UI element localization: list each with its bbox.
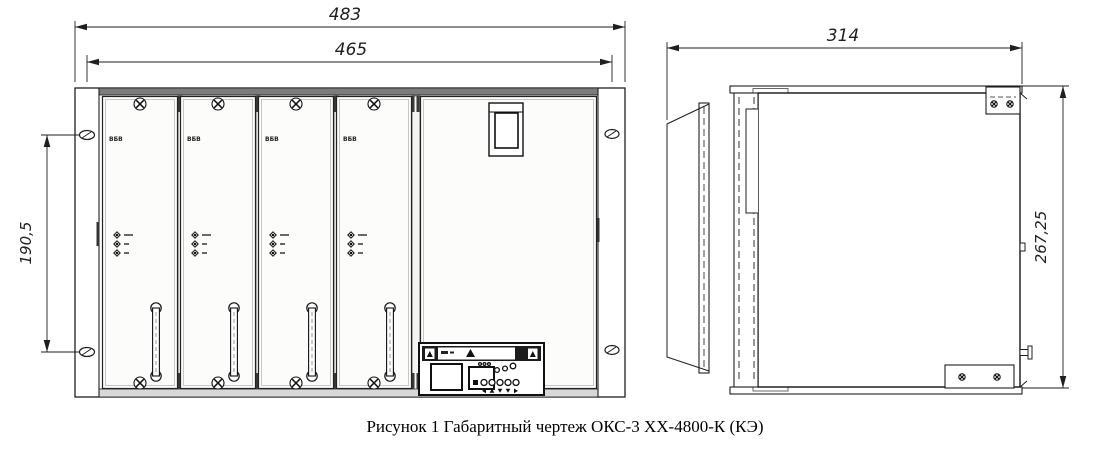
rack-top-band [99, 88, 598, 95]
corner-mark [1020, 381, 1027, 387]
ear-notch [97, 222, 100, 246]
module-handle [385, 303, 395, 381]
side-view [667, 86, 1032, 394]
chassis-body [758, 93, 1020, 387]
dimension-height: 267,25 [1022, 86, 1069, 388]
module-type-label: ВБВ [187, 136, 201, 143]
screw-icon [212, 98, 224, 110]
internal-step [746, 109, 758, 213]
dimension-inner-width: 465 [87, 40, 612, 82]
screw-icon [368, 98, 380, 110]
mounting-slot [605, 130, 619, 139]
dim-value-height: 267,25 [1032, 211, 1050, 264]
screw-icon [994, 374, 1000, 380]
mounting-slot [605, 346, 619, 355]
power-module: ВБВ [181, 97, 256, 390]
distribution-panel [419, 97, 597, 396]
figure-caption: Рисунок 1 Габаритный чертеж ОКС-3 ХХ-480… [290, 417, 840, 437]
technical-drawing: ВБВ [0, 0, 1103, 449]
breaker-window [489, 103, 523, 156]
mounting-slot [80, 348, 95, 357]
rear-stud [1020, 243, 1025, 251]
screw-icon [134, 98, 146, 110]
screw-icon [134, 377, 146, 389]
screw-icon [290, 377, 302, 389]
screw-icon [290, 98, 302, 110]
module-type-label: ВБВ [265, 136, 279, 143]
dim-arrow-icon [1010, 45, 1022, 52]
screw-icon [1007, 101, 1013, 107]
drawing-canvas: ВБВ [0, 0, 1103, 449]
dimension-mounting-height: 190,5 [17, 135, 79, 352]
dim-arrow-icon [613, 24, 625, 31]
dim-arrow-icon [1060, 86, 1067, 98]
dim-value-overall-width: 483 [329, 5, 361, 25]
dim-arrow-icon [1060, 376, 1067, 388]
power-module: ВБВ [259, 97, 334, 390]
dim-arrow-icon [44, 340, 51, 352]
dim-value-mounting-height: 190,5 [17, 222, 35, 265]
controller-label-mark [450, 352, 454, 354]
mounting-bracket [945, 365, 1014, 388]
power-module: ВБВ [337, 97, 412, 390]
display-window [431, 364, 462, 390]
module-type-label: ВБВ [109, 136, 123, 143]
screw-icon [959, 374, 965, 380]
screw-icon [991, 101, 997, 107]
dim-value-depth: 314 [827, 26, 859, 46]
module-type-label: ВБВ [343, 136, 357, 143]
controller-unit [419, 343, 544, 395]
mounting-slot [80, 131, 95, 140]
power-module: ВБВ [103, 97, 178, 390]
front-view: ВБВ [75, 88, 625, 397]
dim-arrow-icon [667, 45, 679, 52]
dim-arrow-icon [75, 24, 87, 31]
dim-arrow-icon [87, 59, 99, 66]
module-handle [229, 303, 239, 381]
dim-arrow-icon [600, 59, 612, 66]
mounting-bracket [986, 87, 1020, 114]
dim-arrow-icon [44, 135, 51, 147]
screw-icon [368, 377, 380, 389]
screw-icon [212, 377, 224, 389]
module-handle [307, 303, 317, 381]
dim-value-inner-width: 465 [335, 40, 367, 60]
controller-label-mark [441, 351, 448, 354]
module-handle [151, 303, 161, 381]
rear-stud [1020, 346, 1032, 359]
corner-mark [1020, 93, 1027, 99]
